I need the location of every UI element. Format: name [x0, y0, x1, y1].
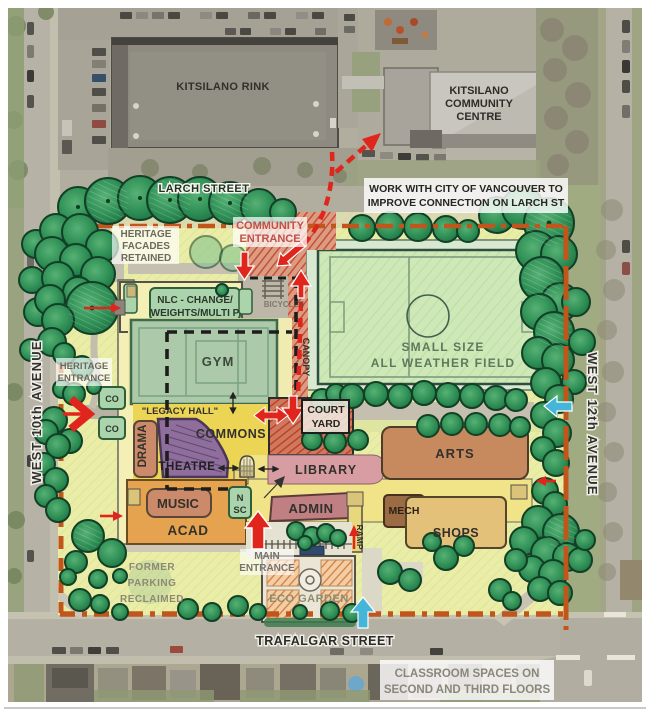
svg-text:ADMIN: ADMIN [288, 501, 333, 516]
svg-text:FORMER: FORMER [129, 562, 176, 573]
svg-text:WORK WITH CITY OF VANCOUVER TO: WORK WITH CITY OF VANCOUVER TO [369, 183, 563, 195]
svg-text:KITSILANO: KITSILANO [449, 85, 509, 97]
svg-text:RETAINED: RETAINED [121, 253, 171, 264]
svg-text:N: N [237, 493, 244, 504]
svg-text:HERITAGE: HERITAGE [60, 361, 108, 372]
svg-text:ALL WEATHER FIELD: ALL WEATHER FIELD [371, 356, 516, 370]
svg-text:SMALL SIZE: SMALL SIZE [401, 340, 484, 354]
svg-text:ENTRANCE: ENTRANCE [239, 563, 295, 574]
svg-text:COMMUNITY: COMMUNITY [236, 220, 304, 232]
svg-text:DRAMA: DRAMA [137, 425, 149, 468]
svg-text:ACAD: ACAD [168, 523, 209, 538]
svg-text:TRAFALGAR STREET: TRAFALGAR STREET [256, 634, 394, 648]
svg-text:WEIGHTS/MULTI P: WEIGHTS/MULTI P [151, 308, 240, 319]
svg-text:SECOND AND THIRD FLOORS: SECOND AND THIRD FLOORS [384, 684, 551, 696]
svg-text:GYM: GYM [202, 354, 235, 369]
svg-text:RECLAIMED: RECLAIMED [120, 594, 184, 605]
svg-text:ECO GARDEN: ECO GARDEN [269, 593, 349, 605]
svg-text:PARKING: PARKING [128, 578, 177, 589]
svg-text:CO: CO [105, 394, 119, 404]
svg-text:YARD: YARD [312, 418, 341, 430]
svg-text:BICYCLES: BICYCLES [264, 300, 305, 309]
svg-text:CO: CO [105, 424, 119, 434]
svg-text:CENTRE: CENTRE [456, 111, 501, 123]
svg-text:IMPROVE CONNECTION ON LARCH ST: IMPROVE CONNECTION ON LARCH ST [368, 197, 565, 209]
svg-text:NLC - CHANGE/: NLC - CHANGE/ [157, 295, 233, 306]
svg-text:SC: SC [233, 505, 246, 516]
svg-text:FACADES: FACADES [122, 241, 170, 252]
svg-text:MAIN: MAIN [254, 551, 280, 562]
svg-text:HERITAGE: HERITAGE [121, 229, 172, 240]
svg-text:"LEGACY HALL": "LEGACY HALL" [142, 406, 218, 417]
svg-text:THEATRE: THEATRE [159, 461, 216, 473]
svg-text:ENTRANCE: ENTRANCE [239, 233, 300, 245]
svg-text:CANOPY: CANOPY [301, 338, 311, 377]
svg-text:COMMONS: COMMONS [196, 427, 266, 441]
svg-text:RAMP: RAMP [355, 524, 365, 549]
svg-text:MECH: MECH [389, 505, 420, 517]
svg-text:KITSILANO RINK: KITSILANO RINK [176, 81, 269, 93]
svg-text:LIBRARY: LIBRARY [295, 463, 357, 477]
svg-text:MUSIC: MUSIC [157, 496, 200, 511]
svg-text:SHOPS: SHOPS [433, 526, 479, 540]
svg-text:COMMUNITY: COMMUNITY [445, 98, 513, 110]
svg-text:WEST 10th AVENUE: WEST 10th AVENUE [29, 340, 44, 483]
svg-text:LARCH STREET: LARCH STREET [159, 183, 250, 195]
svg-text:WEST 12th AVENUE: WEST 12th AVENUE [585, 352, 600, 495]
svg-text:CLASSROOM SPACES ON: CLASSROOM SPACES ON [395, 668, 540, 680]
svg-text:ARTS: ARTS [435, 446, 474, 461]
svg-text:ENTRANCE: ENTRANCE [58, 373, 111, 384]
svg-text:COURT: COURT [307, 404, 345, 416]
